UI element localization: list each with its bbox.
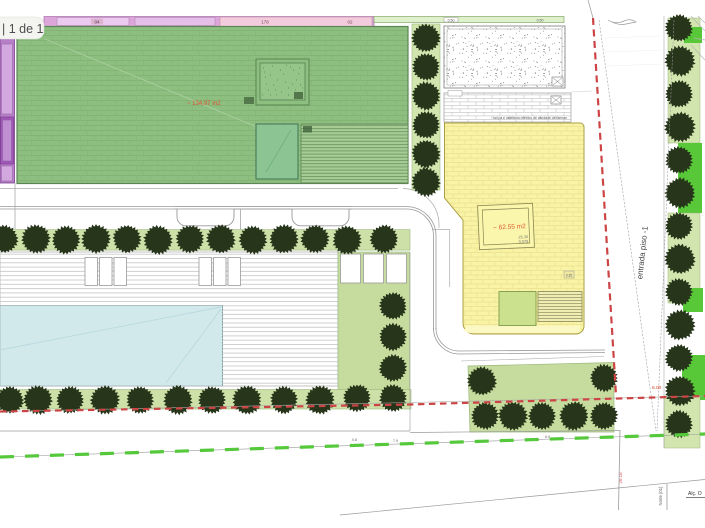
svg-text:0.50: 0.50 <box>448 19 455 23</box>
svg-text:| 1 de 1: | 1 de 1 <box>2 22 44 36</box>
svg-text:~ 134.97 m2: ~ 134.97 m2 <box>187 101 221 107</box>
svg-text:0.35: 0.35 <box>566 274 572 278</box>
svg-text:0.8: 0.8 <box>352 438 357 442</box>
svg-text:02: 02 <box>347 20 353 25</box>
svg-text:~ 62.55 m2: ~ 62.55 m2 <box>493 223 526 231</box>
svg-text:0.078: 0.078 <box>519 240 529 244</box>
svg-text:Alç. O: Alç. O <box>688 491 702 497</box>
svg-text:6.9: 6.9 <box>545 435 550 439</box>
svg-text:7.9: 7.9 <box>393 439 398 443</box>
svg-text:6.00: 6.00 <box>652 385 662 391</box>
svg-text:lud pa e valetismo eletrico de: lud pa e valetismo eletrico de vandade d… <box>493 116 567 120</box>
svg-text:Norte (01): Norte (01) <box>658 486 663 505</box>
svg-text:178: 178 <box>261 20 269 25</box>
svg-text:04: 04 <box>94 20 100 25</box>
svg-text:0.50: 0.50 <box>537 19 544 23</box>
